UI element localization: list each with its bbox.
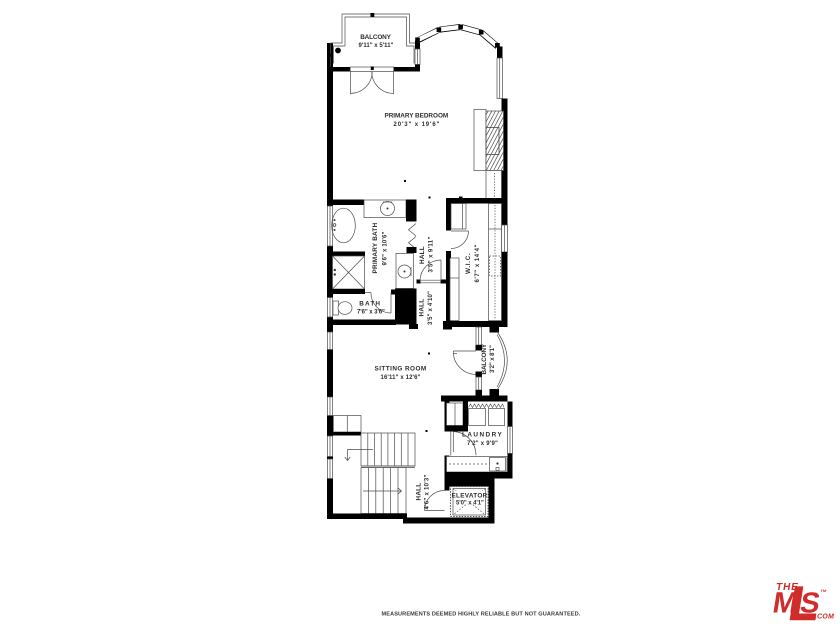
svg-text:MEASUREMENTS DEEMED HIGHLY REL: MEASUREMENTS DEEMED HIGHLY RELIABLE BUT … [382,612,581,618]
svg-text:5'0" x 4'1": 5'0" x 4'1" [456,501,484,507]
svg-text:HALL: HALL [416,483,423,501]
svg-text:20'3" x 19'6": 20'3" x 19'6" [394,122,440,128]
svg-text:BALCONY: BALCONY [481,343,488,374]
svg-text:LAUNDRY: LAUNDRY [462,432,502,439]
svg-text:BATH: BATH [359,301,380,308]
svg-text:ELEVATOR: ELEVATOR [452,493,488,500]
svg-text:BALCONY: BALCONY [360,34,391,41]
svg-text:HALL: HALL [419,246,426,264]
svg-text:PRIMARY BEDROOM: PRIMARY BEDROOM [385,113,449,120]
svg-text:4'6" x 10'3": 4'6" x 10'3" [425,474,431,509]
svg-text:HALL: HALL [419,299,426,317]
svg-text:PRIMARY BATH: PRIMARY BATH [372,222,379,273]
svg-text:6'7" x 14'4": 6'7" x 14'4" [475,244,481,282]
svg-text:7'2" x 9'9": 7'2" x 9'9" [467,441,498,447]
svg-text:9'11" x 5'11": 9'11" x 5'11" [359,43,394,49]
svg-text:™: ™ [819,590,827,597]
svg-text:3'2" x 8'1": 3'2" x 8'1" [490,345,496,373]
svg-text:.COM: .COM [814,613,835,621]
svg-text:3'5" x 4'10": 3'5" x 4'10" [428,291,434,325]
svg-text:7'6" x 3'6": 7'6" x 3'6" [357,310,385,316]
svg-text:9'6" x 10'6": 9'6" x 10'6" [383,231,389,265]
svg-text:SITTING ROOM: SITTING ROOM [375,366,427,373]
svg-text:3'5" x 9'11": 3'5" x 9'11" [429,236,435,272]
svg-text:W.I.C.: W.I.C. [465,253,472,274]
svg-text:16'11" x 12'6": 16'11" x 12'6" [381,375,421,381]
